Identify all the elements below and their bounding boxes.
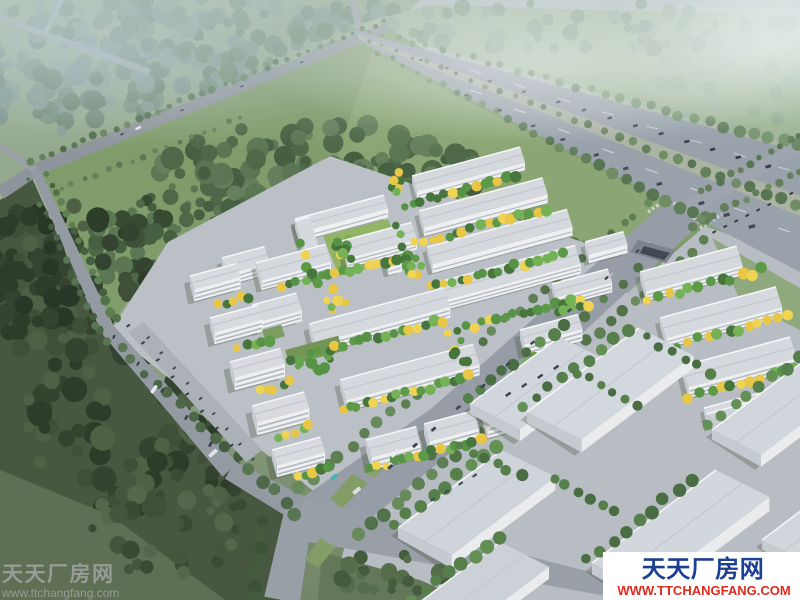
svg-text:天天厂房网: 天天厂房网 xyxy=(642,555,765,583)
svg-text:www.ttchangfang.com: www.ttchangfang.com xyxy=(1,586,119,600)
svg-text:WWW.TTCHANGFANG.COM: WWW.TTCHANGFANG.COM xyxy=(617,583,790,598)
svg-text:天天厂房网: 天天厂房网 xyxy=(2,562,115,586)
